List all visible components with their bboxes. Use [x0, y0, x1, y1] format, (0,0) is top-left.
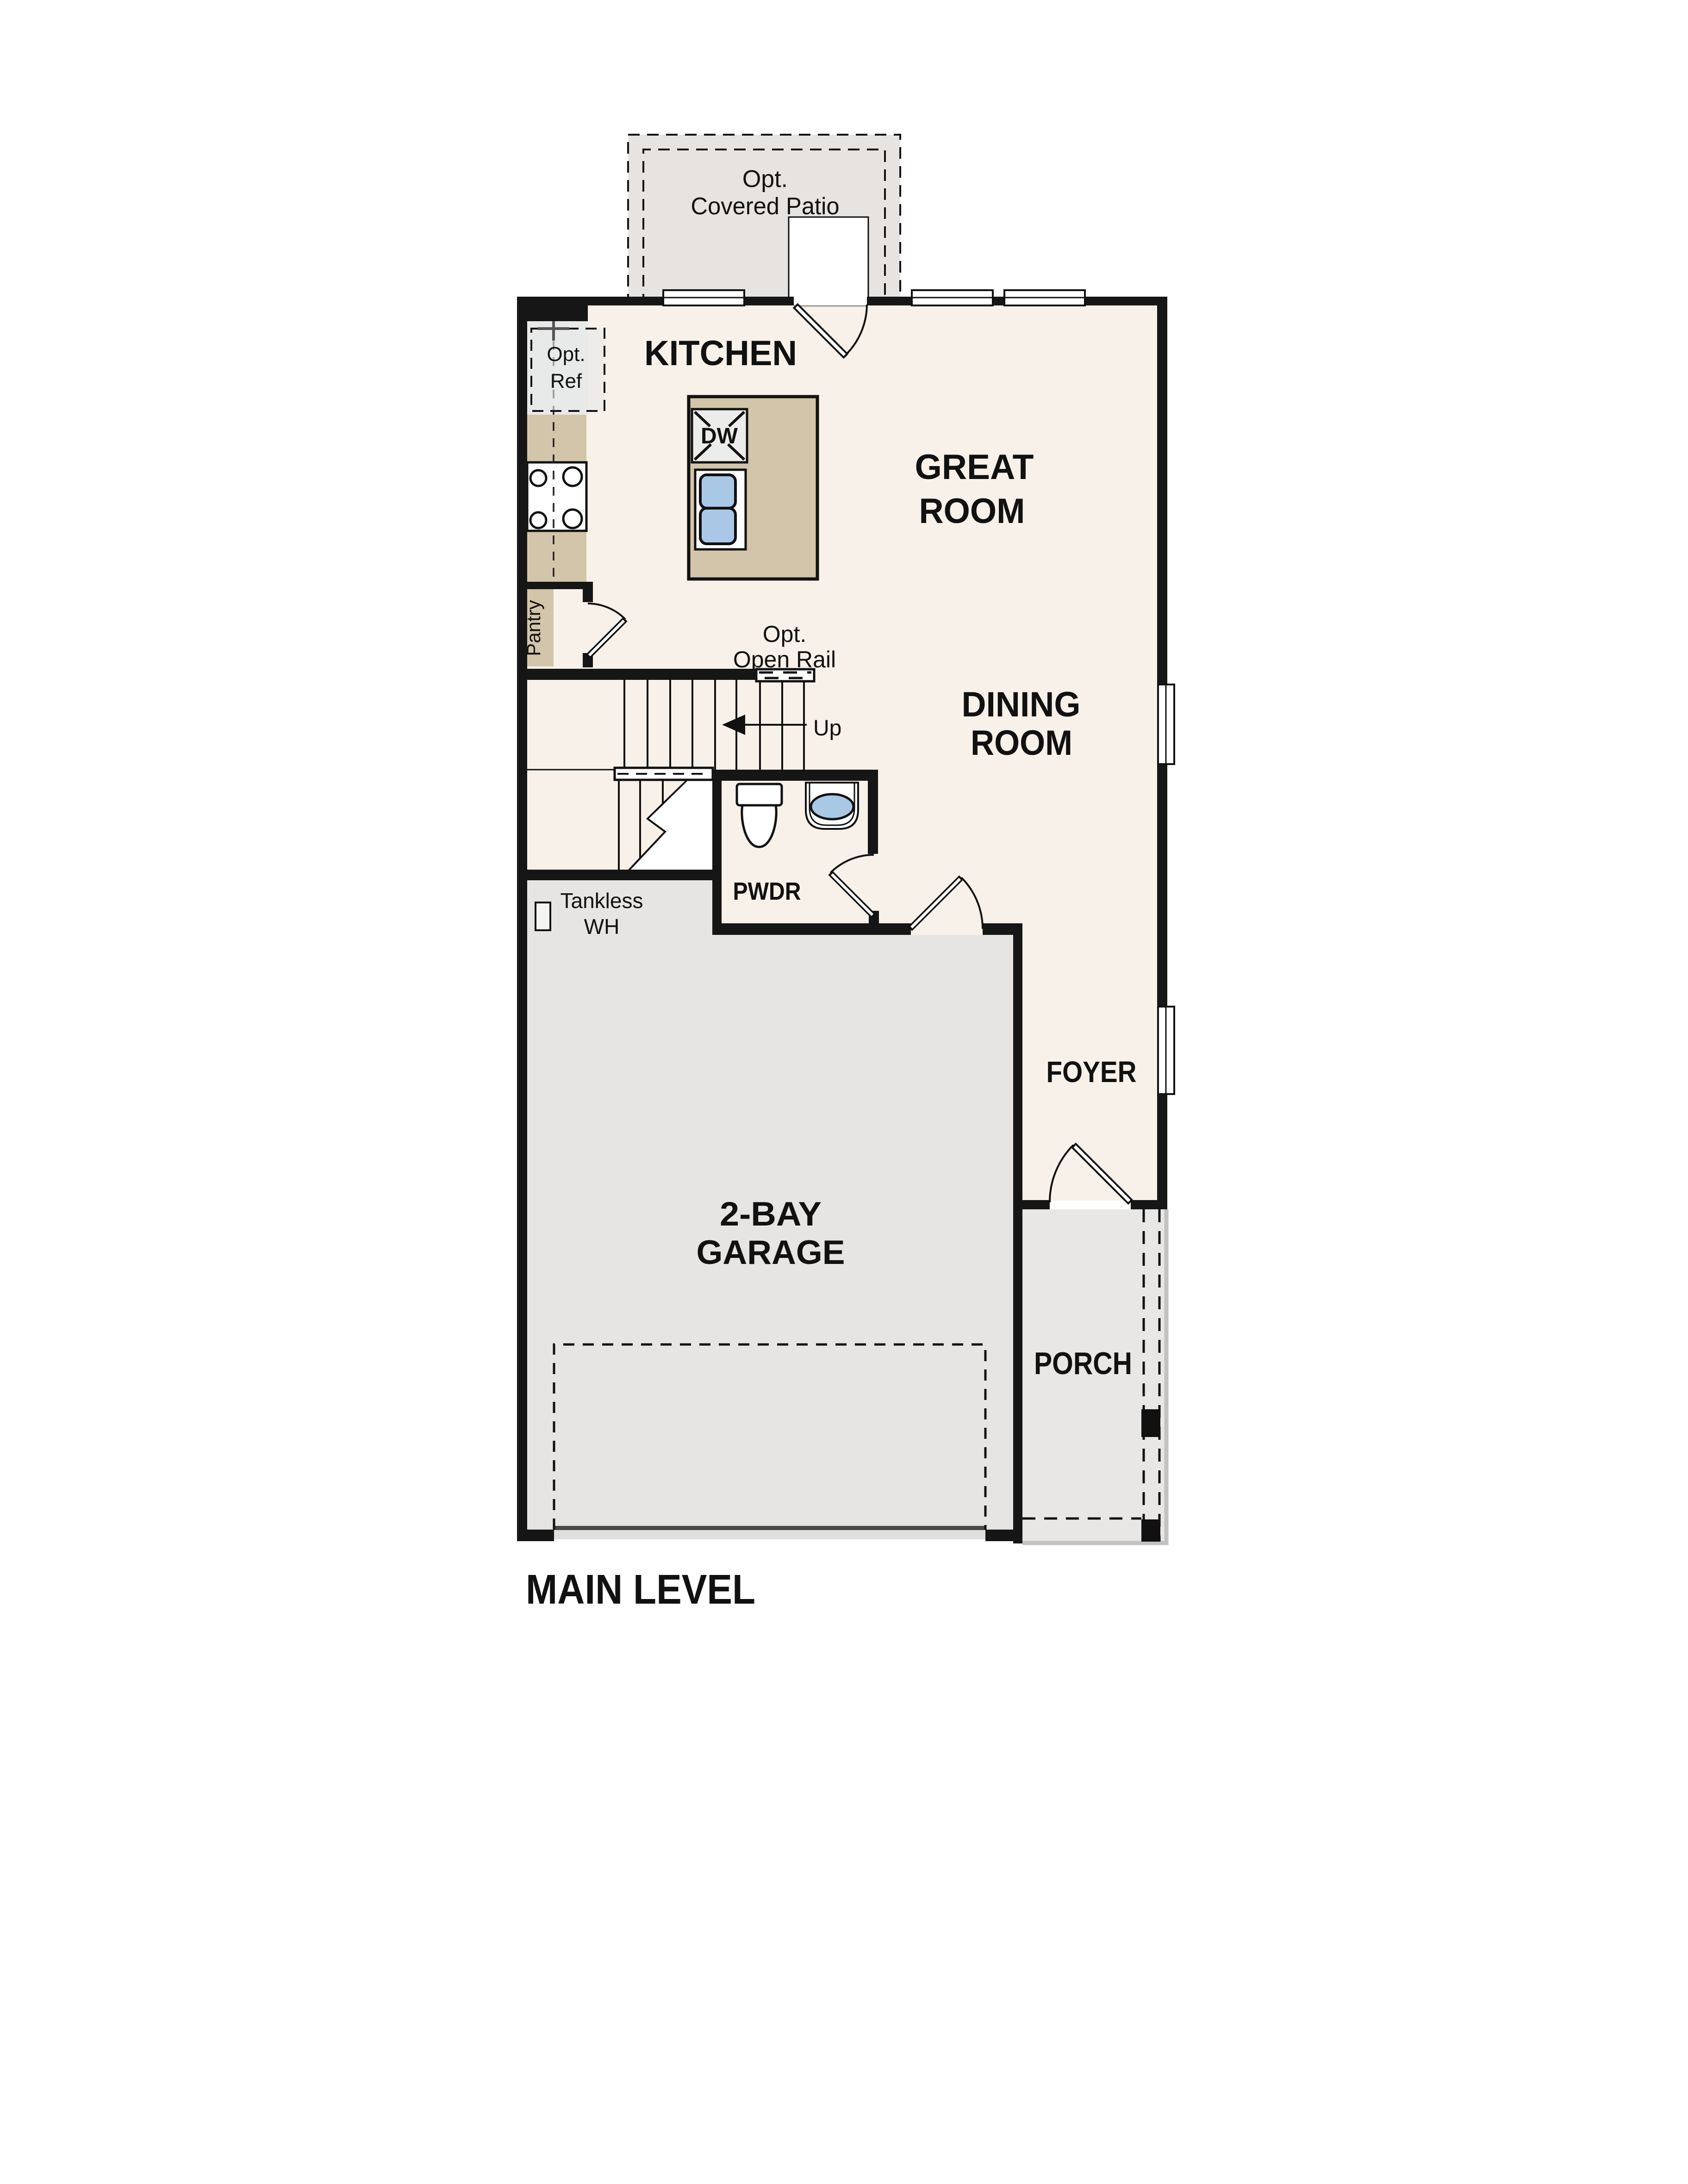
svg-text:DW: DW	[701, 424, 738, 448]
svg-text:ROOM: ROOM	[919, 492, 1025, 531]
svg-text:Opt.: Opt.	[763, 621, 806, 647]
svg-text:ROOM: ROOM	[971, 723, 1072, 763]
svg-text:GARAGE: GARAGE	[697, 1234, 845, 1271]
svg-text:Covered Patio: Covered Patio	[691, 193, 840, 220]
svg-text:KITCHEN: KITCHEN	[644, 334, 797, 373]
svg-text:WH: WH	[584, 915, 620, 939]
svg-text:Opt.: Opt.	[742, 166, 788, 193]
svg-text:FOYER: FOYER	[1046, 1055, 1137, 1089]
svg-text:MAIN LEVEL: MAIN LEVEL	[526, 1567, 755, 1613]
svg-text:GREAT: GREAT	[915, 448, 1034, 487]
svg-text:2-BAY: 2-BAY	[720, 1195, 822, 1233]
svg-text:Opt.: Opt.	[547, 343, 585, 366]
svg-text:Up: Up	[813, 716, 841, 740]
svg-text:Ref: Ref	[550, 370, 582, 392]
svg-text:PWDR: PWDR	[733, 877, 801, 905]
svg-text:Tankless: Tankless	[561, 889, 643, 913]
svg-text:DINING: DINING	[962, 685, 1081, 724]
svg-text:PORCH: PORCH	[1034, 1346, 1132, 1381]
